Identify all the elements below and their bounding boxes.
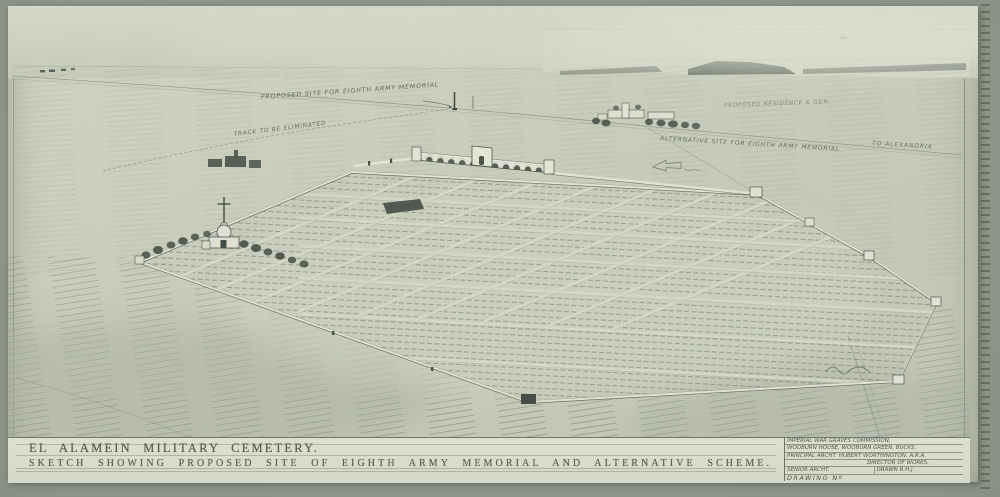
info-director-of-works: DIRECTOR OF WORKS. (785, 460, 963, 467)
info-senior-archt: SENIOR ARCHT. (785, 467, 875, 473)
title-block-info-panel: IMPERIAL WAR GRAVES COMMISSION, WOOBURN … (784, 438, 963, 481)
info-archt-drawn-row: SENIOR ARCHT. DRAWN R.H.J. (785, 467, 963, 474)
paper-grain (8, 6, 978, 482)
photo-edge-perforation (981, 4, 990, 493)
title-block: EL ALAMEIN MILITARY CEMETERY. SKETCH SHO… (8, 437, 970, 483)
perspective-sketch: PROPOSED SITE FOR EIGHTH ARMY MEMORIAL T… (8, 6, 978, 482)
drawing-sheet: PROPOSED SITE FOR EIGHTH ARMY MEMORIAL T… (8, 6, 978, 482)
info-organisation: IMPERIAL WAR GRAVES COMMISSION, (785, 438, 963, 445)
info-drawing-number: DRAWING Nº (785, 475, 963, 481)
drawing-title: EL ALAMEIN MILITARY CEMETERY. (29, 441, 319, 456)
photo-of-architectural-drawing: { "artwork": { "kind": "pencil perspecti… (0, 0, 1000, 497)
info-address: WOOBURN HOUSE, WOOBURN GREEN, BUCKS. (785, 445, 963, 452)
info-drawn-by: DRAWN R.H.J. (875, 467, 964, 473)
drawing-subtitle: SKETCH SHOWING PROPOSED SITE OF EIGHTH A… (29, 458, 772, 469)
info-principal-architect: PRINCIPAL ARCHT. HUBERT WORTHINGTON, A.R… (785, 453, 963, 460)
